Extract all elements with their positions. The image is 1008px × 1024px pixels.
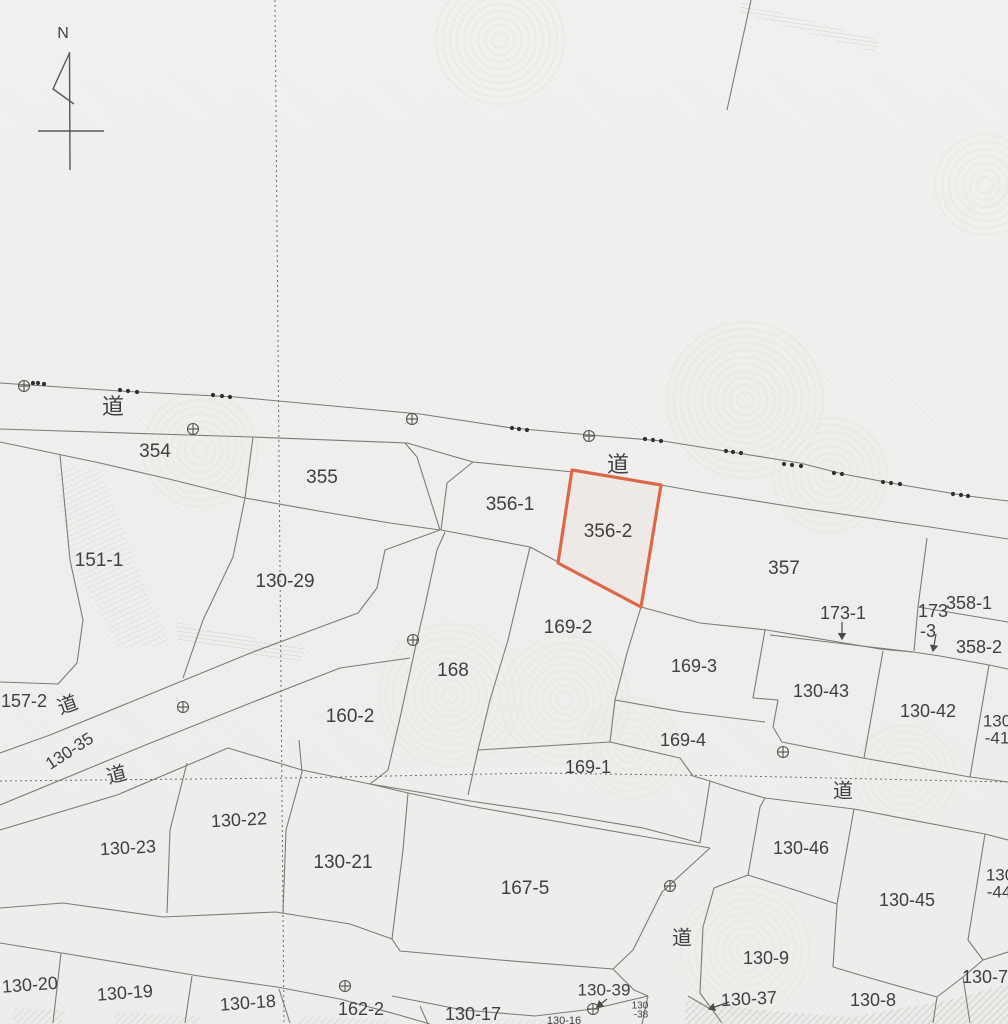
watermark-ring <box>970 170 1000 200</box>
watermark-ring <box>485 25 515 55</box>
hatch-patch <box>12 1008 65 1024</box>
boundary-point-dot <box>799 464 803 468</box>
boundary-point-dot <box>42 382 46 386</box>
boundary-line <box>183 498 245 678</box>
boundary-point-dot <box>889 481 893 485</box>
parcel-number-label: 357 <box>768 558 800 579</box>
boundary-point-dot <box>790 463 794 467</box>
compass-north-label: N <box>57 25 69 42</box>
boundary-line <box>245 498 440 530</box>
road-label: 道 <box>54 690 81 719</box>
boundary-point-dot <box>782 462 786 466</box>
boundary-line <box>167 763 187 913</box>
boundary-point-dot <box>881 480 885 484</box>
watermark-ring <box>890 760 920 790</box>
parcel-number-label: 173 <box>918 601 948 621</box>
boundary-line <box>641 607 913 652</box>
parcel-number-label: 130-16 <box>547 1015 581 1024</box>
boundary-point-dot <box>959 493 963 497</box>
parcel-number-label: 169-1 <box>565 757 611 777</box>
watermark-ring <box>464 4 536 76</box>
parcel-number-label: 130-20 <box>1 973 58 997</box>
parcel-number-label: 356-1 <box>486 494 535 515</box>
watermark-ring <box>615 733 645 763</box>
boundary-point-dot <box>118 388 122 392</box>
boundary-line <box>864 651 883 758</box>
survey-marker-icon <box>588 1004 599 1015</box>
boundary-point-dot <box>840 472 844 476</box>
boundary-point-dot <box>228 395 232 399</box>
parcel-number-label: -3 <box>920 621 936 641</box>
watermark-ring <box>471 11 529 69</box>
boundary-line <box>0 903 613 969</box>
boundary-point-dot <box>659 439 663 443</box>
survey-marker-icon <box>178 702 189 713</box>
boundary-line <box>405 443 440 530</box>
cadastral-map: 道354355356-1道356-2357151-1130-29173-1173… <box>0 0 1008 1024</box>
north-arrow-compass: N <box>38 25 104 170</box>
road-label: 道 <box>833 779 853 803</box>
boundary-line <box>765 798 1008 840</box>
parcel-number-label: 151-1 <box>75 550 124 571</box>
road-label: 道 <box>104 760 130 788</box>
boundary-line <box>283 740 302 913</box>
watermark-ring <box>164 414 236 486</box>
compass-flag <box>53 53 74 104</box>
parcel-number-label: 168 <box>437 660 469 681</box>
compass-pole <box>70 52 71 170</box>
watermark-ring <box>897 767 913 783</box>
parcel-number-label: -38 <box>634 1010 649 1021</box>
parcel-number-label: 130-9 <box>743 948 789 968</box>
parcel-number-label: 356-2 <box>584 521 633 542</box>
parcel-number-label: 130-42 <box>900 701 956 721</box>
boundary-point-dot <box>951 492 955 496</box>
boundary-line <box>753 630 782 742</box>
watermark-ring <box>393 638 507 752</box>
boundary-line <box>968 834 985 960</box>
boundary-point-dot <box>517 427 521 431</box>
watermark-ring <box>716 371 774 429</box>
road-label: 道 <box>672 926 692 950</box>
parcel-number-label: -44 <box>987 882 1008 901</box>
hatch-patch <box>740 2 880 52</box>
watermark-ring <box>492 32 508 48</box>
hatch-patch <box>113 1012 200 1024</box>
boundary-point-dot <box>966 494 970 498</box>
boundary-point-dot <box>36 381 40 385</box>
watermark-ring <box>185 435 215 465</box>
parcel-number-label: 130-23 <box>99 836 156 859</box>
parcel-number-label: 130-19 <box>96 981 153 1005</box>
watermark-ring <box>171 421 229 479</box>
boundary-line <box>358 530 440 613</box>
parcel-number-label: 130-46 <box>773 838 829 858</box>
parcel-number-label: 130-18 <box>219 991 276 1015</box>
watermark-ring <box>536 671 594 729</box>
watermark-ring <box>709 364 781 436</box>
road-label: 道 <box>102 395 124 420</box>
boundary-point-dot <box>126 389 130 393</box>
parcel-number-label: -41 <box>985 728 1008 747</box>
watermark-ring <box>942 142 1008 228</box>
boundary-line <box>727 0 751 110</box>
parcel-number-label: 130-17 <box>445 1004 501 1024</box>
watermark-ring <box>730 385 760 415</box>
watermark-ring <box>876 746 934 804</box>
parcel-number-label: 355 <box>306 467 338 488</box>
boundary-line <box>441 530 558 562</box>
boundary-point-dot <box>651 438 655 442</box>
parcel-number-label: 130-22 <box>210 808 267 831</box>
boundary-line <box>748 875 837 904</box>
boundary-point-dot <box>832 471 836 475</box>
parcel-number-label: 130-35 <box>42 729 97 774</box>
boundary-line <box>279 989 290 1023</box>
parcel-number-label: 130-43 <box>793 681 849 701</box>
dotted-grid-line <box>275 0 284 1024</box>
watermark-ring <box>557 692 573 708</box>
survey-marker-icon <box>188 424 199 435</box>
boundary-point-dot <box>31 381 35 385</box>
parcel-number-label: 162-2 <box>338 999 384 1019</box>
road-label: 道 <box>607 453 629 478</box>
parcel-number-label: 169-4 <box>660 730 706 750</box>
survey-marker-icon <box>778 747 789 758</box>
boundary-point-dot <box>135 390 139 394</box>
watermark-ring <box>435 680 465 710</box>
parcel-number-label: 130-7 <box>962 967 1008 987</box>
parcel-number-label: 130-29 <box>255 571 314 592</box>
parcel-number-label: 173-1 <box>820 603 866 623</box>
parcel-number-label: 130-37 <box>720 987 777 1010</box>
parcel-number-label: 157-2 <box>1 691 47 711</box>
watermark-ring <box>869 739 941 811</box>
boundary-line <box>370 784 408 939</box>
boundary-line <box>710 781 765 798</box>
boundary-line <box>441 462 473 530</box>
survey-marker-icon <box>407 414 418 425</box>
survey-marker-icon <box>340 981 351 992</box>
boundary-point-dot <box>898 482 902 486</box>
boundary-line <box>0 429 573 472</box>
survey-marker-icon <box>665 881 676 892</box>
watermark-ring <box>737 392 753 408</box>
boundary-point-dot <box>724 449 728 453</box>
boundary-line <box>833 809 854 967</box>
survey-benchmark-markers <box>19 381 789 1015</box>
watermark-ring <box>550 685 580 715</box>
watermark-ring <box>977 177 993 193</box>
survey-marker-icon <box>19 381 30 392</box>
boundary-point-dot <box>525 428 529 432</box>
parcel-number-label: 167-5 <box>501 878 550 899</box>
parcel-number-label: 354 <box>139 441 171 462</box>
watermark-ring <box>794 439 866 511</box>
parcel-number-label: 169-2 <box>544 617 593 638</box>
boundary-point-dot <box>211 393 215 397</box>
watermark-ring <box>192 442 208 458</box>
boundary-line <box>408 793 710 848</box>
boundary-point-dot <box>731 450 735 454</box>
parcel-number-label: 358-1 <box>946 593 992 613</box>
cadastral-map-canvas: 道354355356-1道356-2357151-1130-29173-1173… <box>0 0 1008 1024</box>
parcel-number-label: 358-2 <box>956 637 1002 657</box>
survey-marker-icon <box>408 635 419 646</box>
boundary-point-dot <box>510 426 514 430</box>
watermark-ring <box>773 418 887 532</box>
survey-marker-icon <box>584 431 595 442</box>
parcel-number-label: 169-3 <box>671 656 717 676</box>
boundary-point-dot <box>739 451 743 455</box>
parcel-number-label: 130-8 <box>850 990 896 1010</box>
parcel-number-label: 160-2 <box>326 706 375 727</box>
boundary-line <box>700 781 710 843</box>
parcel-number-label: 130-45 <box>879 890 935 910</box>
watermark-ring <box>508 643 622 757</box>
boundary-point-dot <box>220 394 224 398</box>
watermark-ring <box>442 687 458 703</box>
parcel-number-label: 130-39 <box>578 980 631 999</box>
boundary-point-dot <box>643 437 647 441</box>
parcel-number-label: 130-21 <box>313 852 372 873</box>
watermark-ring <box>529 664 601 736</box>
